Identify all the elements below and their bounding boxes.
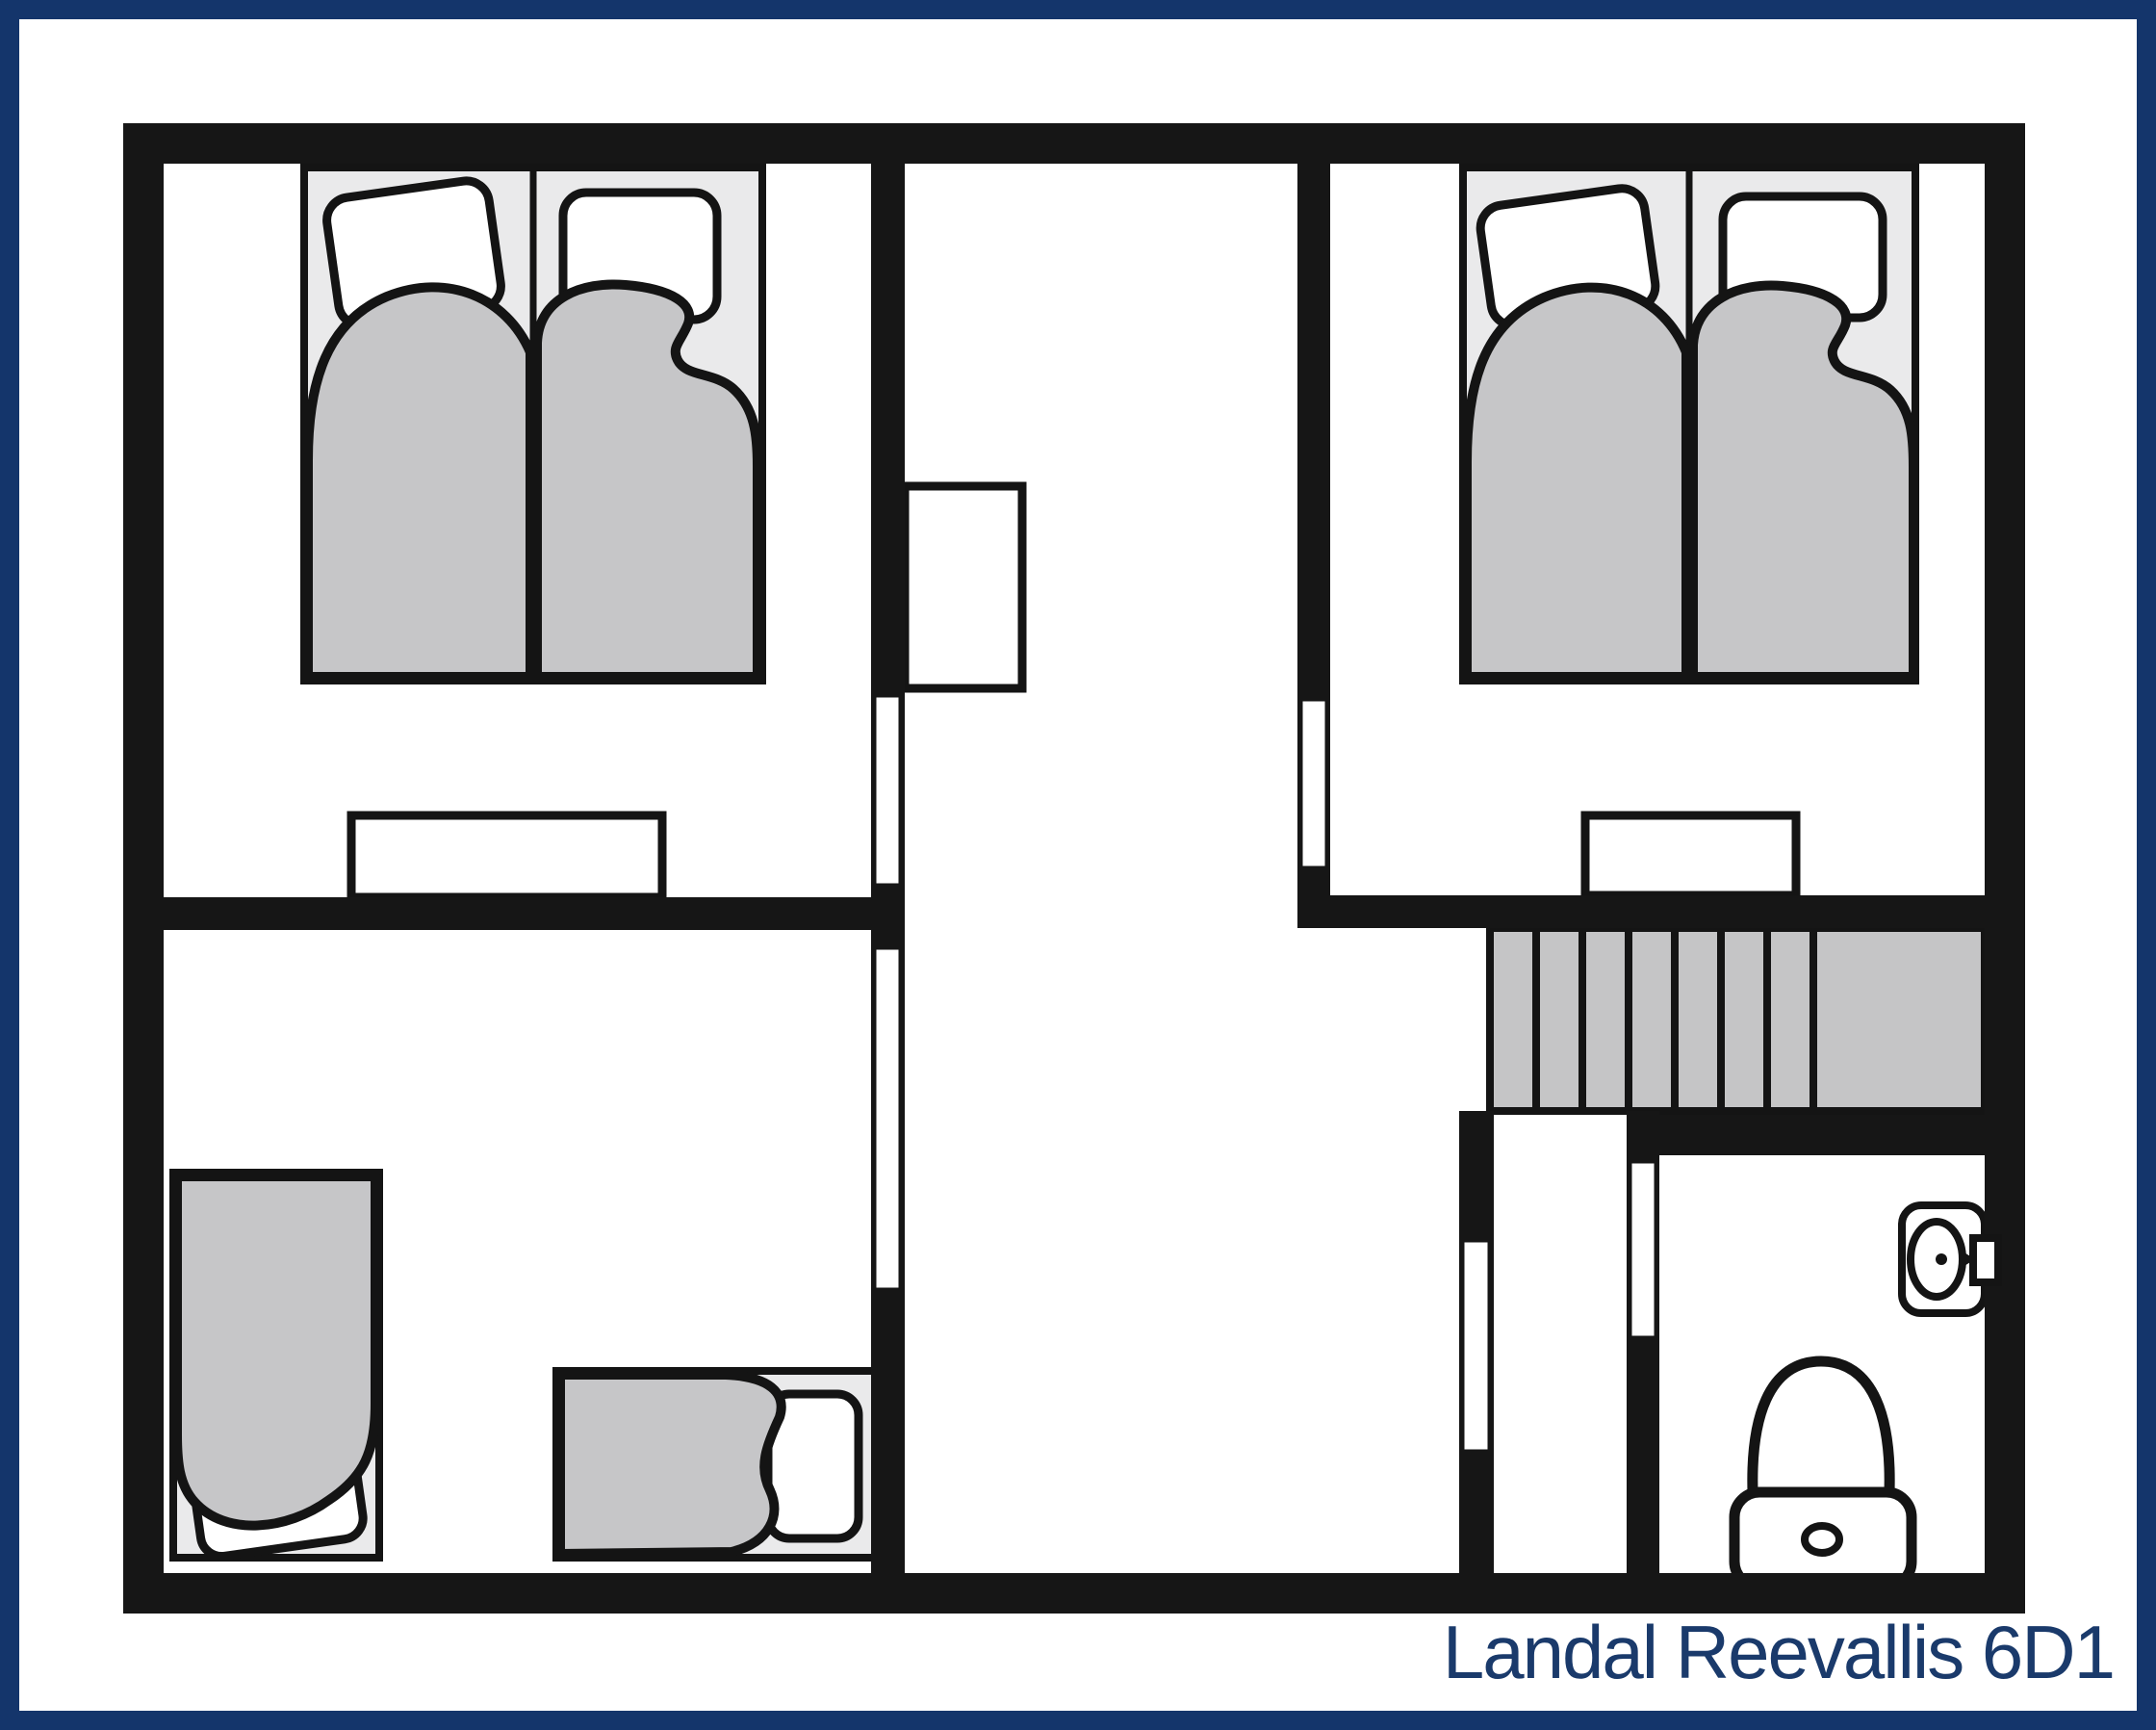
outer-wall-bottom xyxy=(123,1573,2025,1614)
inner-wall-bathroom-top xyxy=(1659,1115,1985,1155)
duvet-left xyxy=(308,287,530,677)
door-understairs xyxy=(1462,1240,1490,1452)
dresser xyxy=(1585,815,1796,895)
floorplan-title: Landal Reevallis 6D1 xyxy=(1443,1614,2114,1692)
duvet-vertical-bed xyxy=(177,1176,375,1526)
bedroom-top-left xyxy=(304,168,762,897)
stairs-area xyxy=(1490,928,1985,1111)
door-bedroom-top-left xyxy=(874,695,901,886)
dresser xyxy=(351,815,662,897)
bedroom-top-right xyxy=(1463,168,1915,895)
door-bedroom-bottom-left xyxy=(874,947,901,1290)
floorplan-page: Landal Reevallis 6D1 xyxy=(0,0,2156,1730)
duvet-left xyxy=(1467,288,1686,677)
bedroom-bottom-left xyxy=(173,1173,880,1559)
door-bedroom-top-right xyxy=(1300,699,1327,868)
staircase xyxy=(1490,928,1985,1111)
inner-wall-bedroom-right-bottom xyxy=(1297,895,1985,928)
floor-plan xyxy=(0,0,2156,1730)
door-bathroom xyxy=(1630,1161,1656,1338)
outer-wall-left xyxy=(123,164,164,1573)
bathroom xyxy=(1734,1205,1985,1587)
inner-wall-left-rooms-divider xyxy=(164,897,871,930)
hallway xyxy=(905,486,1022,688)
outer-wall-right xyxy=(1985,164,2025,1573)
wash-basin-drain xyxy=(1936,1253,1947,1265)
toilet-flush-button xyxy=(1805,1526,1839,1553)
wash-basin-tap xyxy=(1973,1238,1998,1282)
outer-wall-top xyxy=(123,123,2025,164)
wardrobe xyxy=(905,486,1022,688)
duvet-horizontal-bed xyxy=(560,1375,782,1554)
